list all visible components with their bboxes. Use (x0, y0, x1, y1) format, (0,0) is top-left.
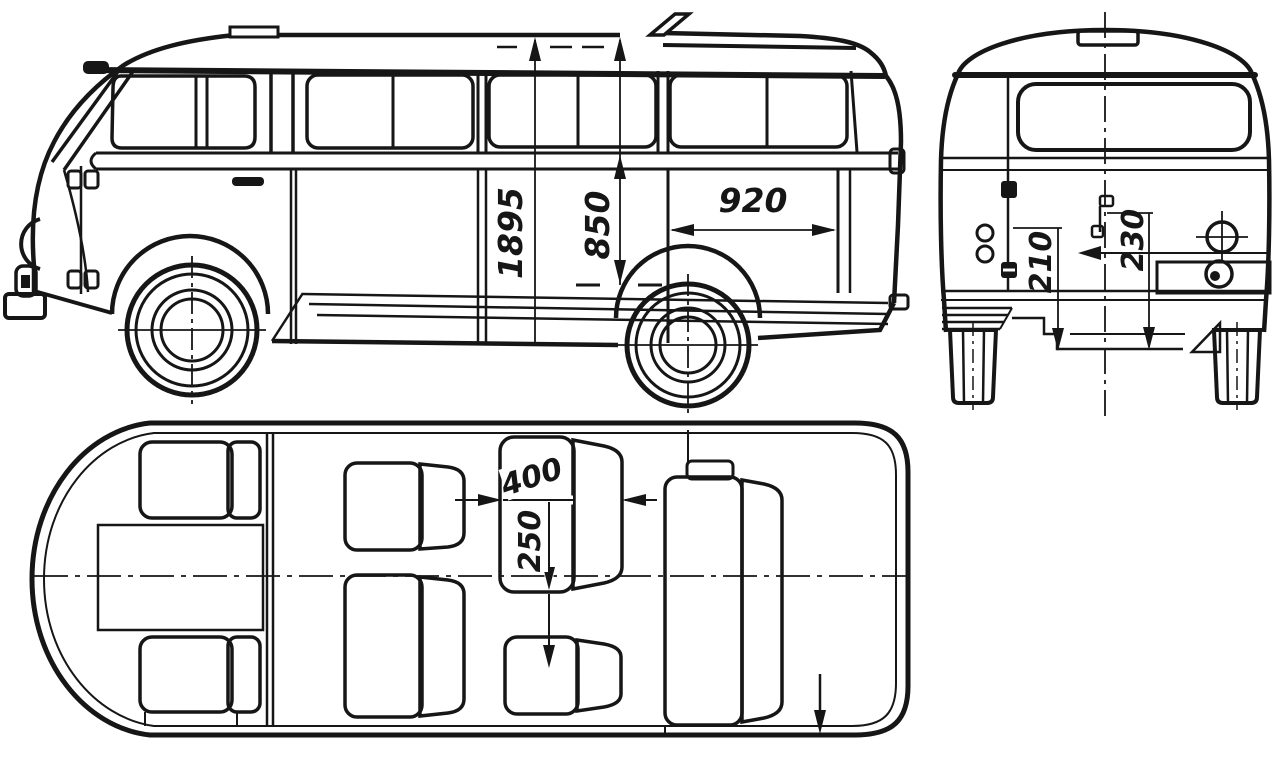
dim-seat-depth: 400 (455, 451, 657, 506)
dim-rear-right: 230 (1107, 209, 1155, 350)
driver-seat (140, 442, 260, 518)
rear-side-left (941, 74, 958, 332)
dim-seat-spacing-label: 250 (513, 510, 548, 573)
skirt-line-2 (309, 304, 888, 314)
rear-hinge-upper (1001, 181, 1017, 198)
belt-trim-cap-front (91, 153, 96, 169)
body-bottom-rear (758, 303, 894, 338)
rear-lock-2 (977, 246, 993, 262)
rear-window (1018, 84, 1250, 150)
window-2 (307, 75, 473, 148)
dim-rear-left-label: 210 (1024, 231, 1059, 294)
rear-lock-1 (977, 225, 993, 241)
rear-pillar (851, 71, 857, 152)
skirt-line-3 (317, 315, 888, 324)
blueprint-page: 1895 850 920 (0, 0, 1286, 763)
window-4 (670, 75, 847, 147)
plan-outline-inner (44, 433, 896, 726)
fuel-cap-crosshair (1196, 211, 1248, 263)
rear-left-skirt (942, 308, 1012, 329)
rear-view-wheel-left (950, 322, 996, 410)
dim-overall-height-label: 1895 (491, 187, 530, 279)
window-3 (489, 75, 656, 147)
engine-box (98, 525, 263, 630)
front-marker-light (83, 61, 109, 74)
dim-sill-height-label: 850 (578, 191, 617, 260)
door-handle (232, 177, 264, 186)
rear-door-handle (1092, 196, 1113, 237)
plan-outline-outer (32, 423, 908, 735)
window-door (112, 76, 255, 148)
side-view: 1895 850 920 (5, 14, 908, 414)
rear-bench-seat (665, 430, 782, 733)
dim-door-width: 920 (670, 181, 836, 236)
tow-hook-arrow (1078, 246, 1101, 260)
dim-door-width-label: 920 (719, 181, 788, 220)
dim-rear-left: 210 (1013, 228, 1064, 351)
marker-lamp-inner (21, 275, 30, 288)
small-rear-seat (505, 637, 621, 714)
skirt-line-1 (303, 294, 888, 303)
door-hinge-lower (68, 271, 98, 288)
roof-box (230, 27, 278, 37)
headlight (21, 219, 40, 269)
skirt-cut (272, 293, 303, 341)
mid-seat-single (345, 463, 464, 550)
body-bottom-mid (272, 341, 618, 345)
plan-view: 400 250 (32, 423, 908, 735)
mid-seat-double (345, 575, 464, 717)
rear-hinge-lower (1001, 262, 1017, 278)
rear-view: 210 230 (941, 12, 1270, 416)
dim-seat-spacing: 250 (512, 502, 555, 668)
tail-lamp (1206, 261, 1232, 287)
dim-rear-right-label: 230 (1116, 209, 1151, 272)
side-roof-rack-line (663, 45, 856, 48)
rear-roof-vent (1078, 31, 1138, 45)
front-passenger-seat (140, 637, 260, 726)
door-hinge-upper (68, 171, 98, 188)
blueprint-canvas: 1895 850 920 (0, 0, 1286, 763)
